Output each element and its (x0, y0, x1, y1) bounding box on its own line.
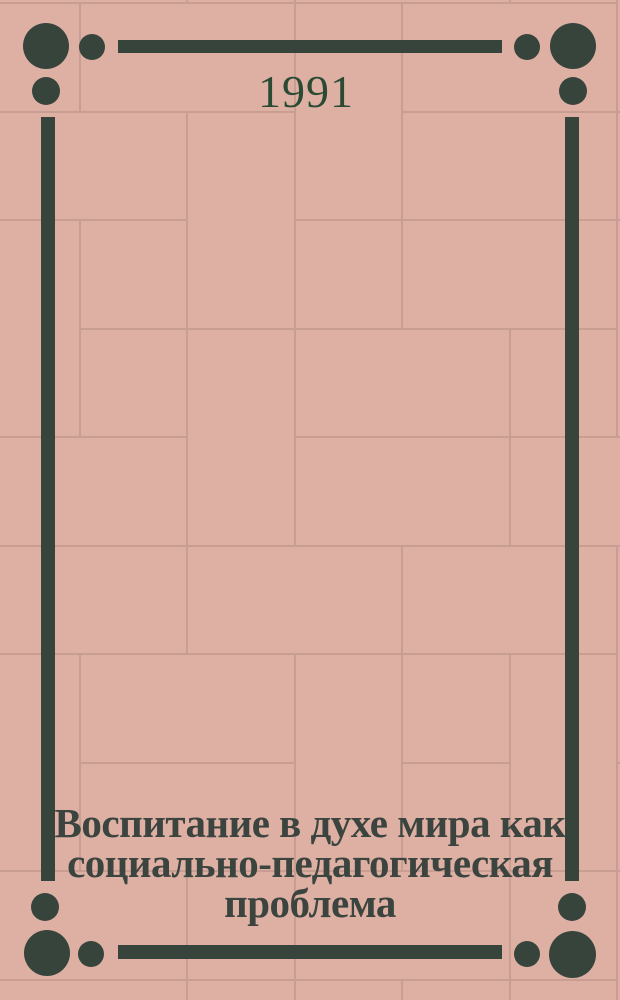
title-line-2: социально-педагогическая (20, 843, 600, 883)
corner-dot-large-top-right (550, 23, 596, 69)
corner-dot-medium-top-left (79, 34, 105, 60)
year-label: 1991 (0, 69, 612, 115)
corner-dot-medium-bottom-right (514, 941, 540, 967)
left-border-bar (41, 117, 55, 881)
book-title: Воспитание в духе мира как социально-пед… (20, 803, 600, 923)
corner-dot-medium-bottom-left (78, 941, 104, 967)
bottom-border-bar (118, 945, 502, 959)
corner-dot-medium-top-right (514, 34, 540, 60)
title-line-1: Воспитание в духе мира как (20, 803, 600, 843)
corner-dot-large-bottom-right (549, 931, 596, 978)
book-cover: 1991 Воспитание в духе мира как социальн… (0, 0, 620, 1000)
corner-dot-large-top-left (23, 23, 69, 69)
title-line-3: проблема (20, 883, 600, 923)
top-border-bar (118, 40, 502, 53)
corner-dot-large-bottom-left (24, 930, 70, 976)
right-border-bar (565, 117, 579, 881)
